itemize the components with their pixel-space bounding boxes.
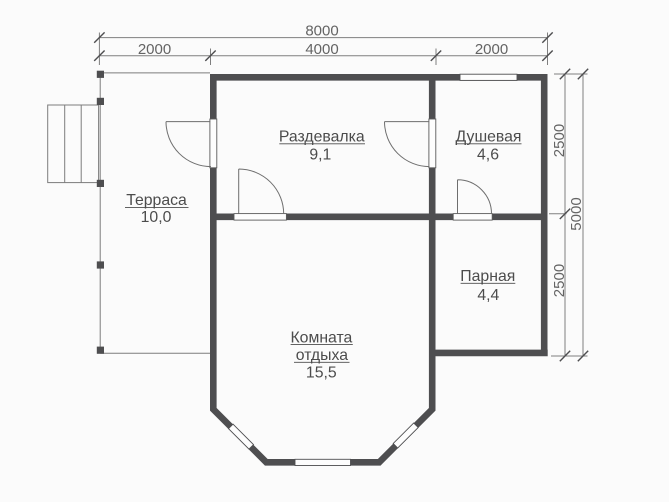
svg-text:8000: 8000 [305, 23, 338, 40]
svg-text:Парная: Парная [460, 268, 515, 285]
svg-text:2500: 2500 [551, 264, 568, 297]
svg-text:Раздевалка: Раздевалка [279, 129, 365, 146]
svg-text:15,5: 15,5 [306, 364, 337, 381]
svg-text:2500: 2500 [551, 124, 568, 157]
svg-text:2000: 2000 [475, 41, 508, 58]
svg-text:4,4: 4,4 [477, 287, 499, 304]
svg-text:Комната: Комната [290, 329, 352, 346]
svg-text:4000: 4000 [305, 41, 338, 58]
svg-text:5000: 5000 [568, 197, 585, 230]
svg-text:отдыха: отдыха [296, 347, 348, 364]
svg-text:Душевая: Душевая [456, 129, 522, 146]
svg-text:9,1: 9,1 [309, 147, 331, 164]
svg-text:Терраса: Терраса [126, 192, 187, 209]
svg-text:2000: 2000 [138, 41, 171, 58]
svg-text:4,6: 4,6 [477, 147, 499, 164]
svg-text:10,0: 10,0 [141, 209, 172, 226]
